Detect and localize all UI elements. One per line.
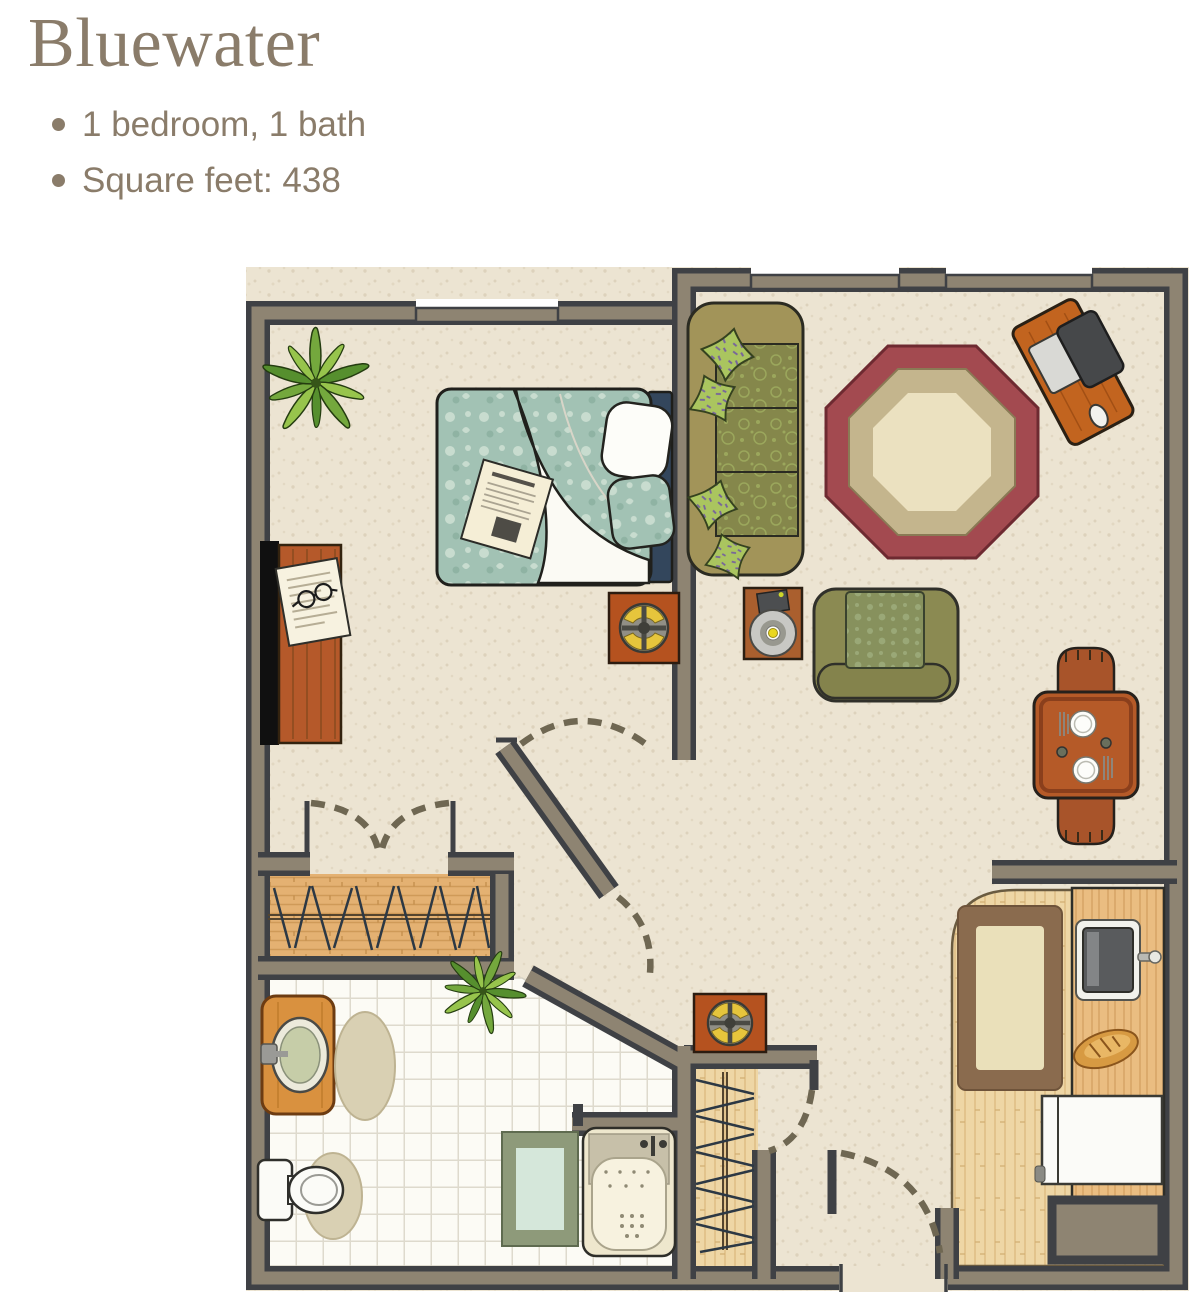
kitchen-rug [958,906,1062,1090]
lamp-side-table [744,588,802,659]
vanity-sink [261,996,334,1114]
octagonal-rug [826,346,1038,558]
nightstand-compass-table [609,593,679,663]
bed [437,389,676,585]
table-lamp-icon [750,610,796,656]
oval-bath-rug [335,1012,395,1120]
floorplan-svg [0,0,1200,1306]
window-living-right [946,266,1092,289]
compass-motif-icon [620,604,668,652]
armchair [814,589,958,701]
tub-knob-icon [659,1140,667,1148]
chair-cushion [846,592,924,668]
white-pillow [599,400,675,482]
toilet-tank [258,1160,292,1220]
compass-motif-icon [708,1001,752,1045]
tub-knob-icon [640,1140,648,1148]
window-bedroom [416,299,558,322]
utility-unit [1052,1200,1162,1260]
hall-compass-table [694,994,766,1052]
faucet-icon [261,1044,277,1064]
bathtub [583,1128,675,1256]
newspaper-with-glasses [276,558,351,646]
entry-threshold-floor [839,1266,947,1292]
toilet-bowl [289,1167,343,1213]
bath-mat [502,1132,578,1246]
sofa [681,303,803,586]
floor-plan-page: Bluewater 1 bedroom, 1 bath Square feet:… [0,0,1200,1306]
appliance-handle [1035,1166,1045,1182]
teal-pillow [606,473,676,550]
refrigerator [1035,1096,1162,1184]
window-living-left [751,266,899,289]
